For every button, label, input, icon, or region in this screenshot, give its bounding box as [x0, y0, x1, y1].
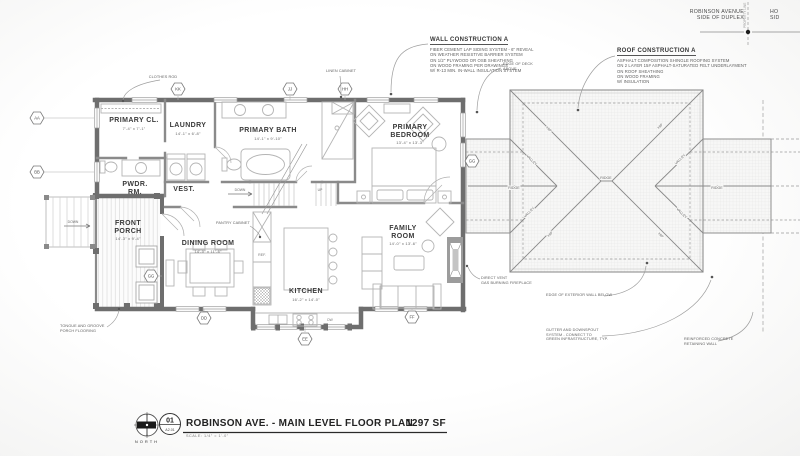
room-dim: 14'-0" x 11'-6" — [168, 249, 248, 254]
marker-ee: EE — [302, 337, 308, 342]
sheet-number: A2.01 — [165, 428, 174, 432]
survey-point — [746, 30, 750, 34]
kitchen-corner-cabinet — [254, 288, 270, 304]
window — [367, 98, 389, 103]
edge-exterior-wall-note: EDGE OF EXTERIOR WALL BELOW — [546, 293, 612, 298]
street-label-line: SIDE OF DUPLEX — [660, 15, 744, 21]
room-label-laundry: LAUNDRY 14'-1" x 6'-8" — [158, 122, 218, 136]
nightstand — [357, 191, 370, 203]
roof-plan: RIDGE RIDGE RIDGE HIP HIP HIP HIP VALLEY… — [466, 90, 800, 272]
refrigerator-label: REF. — [258, 253, 266, 257]
street-label-cutoff: HO SID — [770, 9, 800, 22]
dining-table — [186, 249, 234, 287]
pantry-cabinet-note: PANTRY CABINET — [216, 221, 252, 226]
bed — [372, 148, 436, 203]
exterior-stairs: DOWN — [44, 195, 95, 249]
window — [461, 113, 466, 137]
room-name: PRIMARY BATH — [233, 127, 303, 135]
drawing-title: ROBINSON AVE. - MAIN LEVEL FLOOR PLAN — [186, 418, 413, 429]
gutter-note: GUTTER AND DOWNSPOUT SYSTEM - CONNECT TO… — [546, 328, 608, 342]
room-name: PRIMARY BEDROOM — [375, 124, 445, 139]
marker-ff: FF — [409, 315, 415, 320]
note-line: GAS BURNING FIREPLACE — [481, 281, 532, 286]
room-name: KITCHEN — [276, 288, 336, 296]
room-label-vestibule: VEST. — [159, 186, 209, 194]
linen-cabinet-note: LINEN CABINET — [318, 69, 364, 74]
note-line: ABOVE — [503, 67, 533, 72]
street-label-line: SID — [770, 15, 800, 21]
note-line: RETAINING WALL — [684, 342, 733, 347]
ridge-label: RIDGE — [600, 176, 612, 180]
window — [303, 325, 321, 330]
direct-vent-note: DIRECT VENT GAS BURNING FIREPLACE — [481, 276, 532, 285]
drawing-area: 1297 SF — [406, 418, 446, 429]
room-label-front-porch: FRONT PORCH 14'-3" x 9'-4" — [108, 220, 148, 241]
wall-construction-title: WALL CONSTRUCTION A — [430, 38, 508, 45]
north-label: NORTH — [129, 439, 165, 444]
room-dim: 14'-0" x 13'-6" — [383, 241, 423, 246]
roof-construction-title: ROOF CONSTRUCTION A — [617, 49, 696, 56]
note-line: PORCH FLOORING — [60, 329, 104, 334]
window — [95, 162, 100, 182]
floor-plan-sheet: PROPERTY LINE RIDGE RIDGE RIDGE HIP HIP … — [0, 0, 800, 456]
north-arrow — [134, 412, 160, 438]
window — [414, 98, 438, 103]
window — [176, 307, 199, 312]
buffet — [166, 260, 174, 286]
washer-dryer — [167, 154, 205, 180]
clothes-rod-note: CLOTHES ROD — [140, 75, 186, 80]
powder-sink — [122, 160, 160, 176]
kitchen-counter — [255, 313, 359, 326]
fireplace — [447, 237, 463, 283]
powder-toilet — [100, 161, 117, 173]
coffee-table — [394, 256, 424, 270]
room-name: FRONT PORCH — [108, 220, 148, 235]
window — [95, 108, 100, 128]
room-name: VEST. — [159, 186, 209, 194]
sectional — [362, 237, 382, 289]
window — [132, 98, 157, 103]
window — [327, 325, 345, 330]
room-label-primary-closet: PRIMARY CL. 7'-4" x 7'-1" — [108, 117, 160, 131]
dishwasher-label: DW — [327, 318, 333, 322]
sofa — [373, 284, 441, 309]
room-label-powder: PWDR. RM. — [118, 181, 152, 196]
room-dim: 14'-3" x 9'-4" — [108, 236, 148, 241]
roof-construction-note: ROOF CONSTRUCTION A ASPHALT COMPOSITION … — [617, 48, 777, 84]
porch-flooring-note: TONGUE AND GROOVE PORCH FLOORING — [60, 324, 104, 333]
exterior-stairs-down-label: DOWN — [68, 220, 79, 224]
window — [284, 98, 307, 103]
room-name: PRIMARY CL. — [108, 117, 160, 125]
marker-dd: DD — [201, 316, 207, 321]
stairs-up-label: UP — [318, 188, 323, 192]
room-label-dining: DINING ROOM 14'-0" x 11'-6" — [168, 240, 248, 254]
closet-shelf — [101, 104, 161, 113]
marker-bb: BB — [34, 170, 40, 175]
bath-vanity — [222, 102, 286, 118]
kitchen-island — [284, 228, 337, 290]
marker-hh: HH — [342, 87, 348, 92]
room-dim: 16'-2" x 14'-0" — [276, 297, 336, 302]
room-name: PWDR. RM. — [118, 181, 152, 196]
room-label-primary-bedroom: PRIMARY BEDROOM 13'-4" x 13'-3" — [375, 124, 445, 145]
note-line: REINFORCED CONCRETE — [684, 337, 733, 342]
room-name: LAUNDRY — [158, 122, 218, 130]
note-line: GUTTER AND DOWNSPOUT — [546, 328, 608, 333]
note-line: EDGE OF DECK — [503, 62, 533, 67]
room-label-primary-bath: PRIMARY BATH 14'-1" x 9'-10" — [233, 127, 303, 141]
bathtub — [241, 149, 290, 180]
marker-jj: JJ — [288, 87, 292, 92]
window — [461, 143, 466, 167]
room-dim: 14'-1" x 6'-8" — [158, 131, 218, 136]
ridge-label: RIDGE — [711, 186, 723, 190]
drawing-scale: SCALE: 1/4" = 1'-0" — [186, 434, 229, 438]
family-chair — [426, 208, 454, 236]
detail-number: 01 — [166, 418, 174, 425]
room-label-family: FAMILY ROOM 14'-0" x 13'-6" — [383, 225, 423, 246]
note-line: W/ INSULATION — [617, 79, 777, 84]
detail-bubble: 01 A2.01 — [160, 414, 181, 435]
room-dim: 7'-4" x 7'-1" — [108, 126, 160, 131]
marker-aa: AA — [34, 116, 40, 121]
room-label-kitchen: KITCHEN 16'-2" x 14'-0" — [276, 288, 336, 302]
street-label-robinson: ROBINSON AVENUE SIDE OF DUPLEX — [660, 9, 744, 22]
marker-gg: GG — [148, 274, 155, 279]
window — [203, 307, 226, 312]
room-name: DINING ROOM — [168, 240, 248, 248]
edge-of-deck-note: EDGE OF DECK ABOVE — [503, 62, 533, 71]
marker-gg: GG — [469, 159, 476, 164]
window — [279, 325, 297, 330]
retaining-wall-note: REINFORCED CONCRETE RETAINING WALL — [684, 337, 733, 346]
interior-stairs: DOWN UP — [228, 144, 336, 214]
side-table — [422, 240, 434, 252]
marker-kk: KK — [175, 87, 181, 92]
ridge-label: RIDGE — [508, 186, 520, 190]
nightstand — [438, 191, 451, 203]
stairs-down-label: DOWN — [235, 188, 246, 192]
room-dim: 14'-1" x 9'-10" — [233, 136, 303, 141]
bench — [384, 104, 410, 113]
window — [257, 325, 275, 330]
note-line: GREEN INFRASTRUCTURE, TYP. — [546, 337, 608, 342]
bath-toilet — [222, 158, 241, 171]
room-name: FAMILY ROOM — [383, 225, 423, 240]
note-line: TONGUE AND GROOVE — [60, 324, 104, 329]
room-dim: 13'-4" x 13'-3" — [375, 140, 445, 145]
